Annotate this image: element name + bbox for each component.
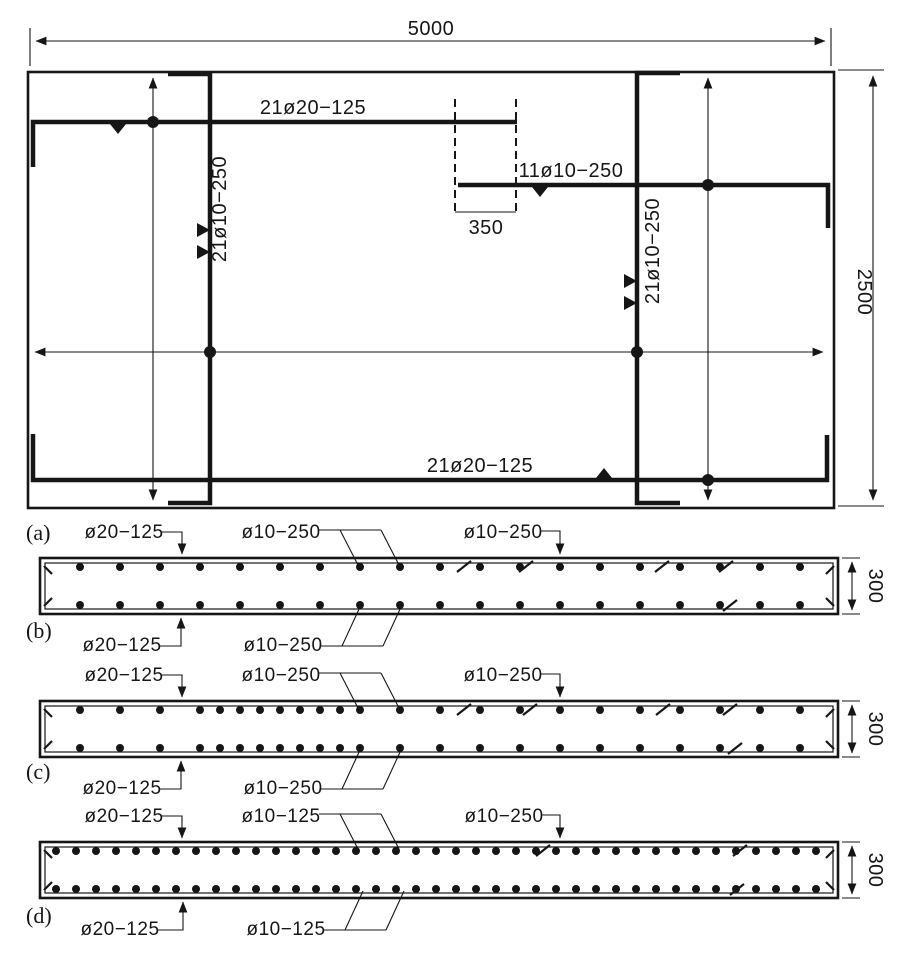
- rebar-dot: [396, 706, 404, 714]
- rebar-dot: [252, 885, 260, 893]
- rebar-dot: [796, 563, 804, 571]
- callout-label: ø10−250: [241, 522, 320, 543]
- rebar-dot: [596, 706, 604, 714]
- rebar-dot: [756, 744, 764, 752]
- rebar-dot: [236, 563, 244, 571]
- lap-dim-value: 350: [469, 217, 504, 239]
- rebar-dot: [772, 885, 780, 893]
- rebar-dot: [316, 601, 324, 609]
- rebar-dot: [712, 885, 720, 893]
- rebar-dot: [512, 847, 520, 855]
- rebar-dot: [636, 601, 644, 609]
- rebar-dots: [76, 704, 804, 754]
- rebar-dot: [676, 601, 684, 609]
- extension-line: [842, 558, 860, 614]
- rebar-dot: [756, 706, 764, 714]
- rebar-dot: [596, 601, 604, 609]
- leader-line: [160, 618, 181, 646]
- leader-line: [162, 816, 182, 838]
- rebar-dot: [812, 847, 820, 855]
- top-main-bar: 21ø20−125: [33, 97, 517, 167]
- rebar-dot: [436, 563, 444, 571]
- rebar-dot: [452, 847, 460, 855]
- extension-line: [842, 842, 860, 898]
- top-main-bar-label: 21ø20−125: [260, 97, 366, 119]
- depth-dimension: 300: [842, 842, 886, 898]
- callout-label: ø10−250: [463, 665, 542, 686]
- rebar-dot: [52, 847, 60, 855]
- rebar-dot: [772, 847, 780, 855]
- rebar-dot: [76, 563, 84, 571]
- bottom-main-callout: ø20−125: [82, 761, 181, 799]
- callout-label: ø10−250: [463, 522, 542, 543]
- rebar-dot: [396, 601, 404, 609]
- rebar-dot: [516, 744, 524, 752]
- rebar-dot: [72, 847, 80, 855]
- middle-bar-label: 11ø10−250: [519, 160, 624, 182]
- caption-d: (d): [26, 903, 52, 928]
- leader-line: [162, 532, 182, 554]
- rebar-dot: [92, 847, 100, 855]
- rebar-dot: [152, 885, 160, 893]
- rebar-dot: [112, 847, 120, 855]
- rebar-dot: [492, 885, 500, 893]
- rebar-dot: [276, 563, 284, 571]
- rebar-dots: [52, 845, 820, 895]
- rebar-dot: [352, 885, 360, 893]
- section-b: ø20−125 ø10−250 ø10−250 ø20−125 ø10−250 …: [26, 522, 886, 656]
- plan-height-value: 2500: [853, 269, 875, 316]
- rebar-dot: [476, 744, 484, 752]
- rebar-dot: [232, 847, 240, 855]
- rebar-dot: [172, 847, 180, 855]
- leader-line: [319, 530, 399, 565]
- rebar-dot: [612, 885, 620, 893]
- rebar-dot: [592, 847, 600, 855]
- leader-line: [541, 531, 560, 554]
- rebar-dot: [236, 706, 244, 714]
- rebar-dot: [196, 563, 204, 571]
- rebar-dot: [76, 601, 84, 609]
- rebar-dot: [216, 706, 224, 714]
- rebar-dot: [372, 885, 380, 893]
- rebar-dot: [332, 847, 340, 855]
- rebar-dot: [676, 563, 684, 571]
- rebar-dot: [276, 706, 284, 714]
- rebar-dot: [276, 601, 284, 609]
- slab-outline: [28, 72, 834, 508]
- callout-label: ø20−125: [84, 665, 163, 686]
- rebar-dot: [272, 847, 280, 855]
- callout-label: ø10−250: [243, 778, 322, 799]
- rebar-dot: [436, 601, 444, 609]
- callout-label: ø20−125: [84, 806, 163, 827]
- rebar-dot: [476, 563, 484, 571]
- rebar-dot: [492, 847, 500, 855]
- rebar-dot: [272, 885, 280, 893]
- rebar-dot: [476, 706, 484, 714]
- rebar-dot: [612, 847, 620, 855]
- bottom-main-bar-label: 21ø20−125: [427, 455, 533, 477]
- rebar-dot: [332, 885, 340, 893]
- rebar-dot: [636, 744, 644, 752]
- leader-line: [542, 815, 560, 838]
- rebar-dot: [276, 744, 284, 752]
- rebar-dot: [92, 885, 100, 893]
- depth-dimension: 300: [842, 701, 886, 757]
- rebar-dot: [232, 885, 240, 893]
- plan-width-value: 5000: [408, 18, 455, 40]
- rebar-dot: [236, 601, 244, 609]
- rebar-dot: [756, 563, 764, 571]
- rebar-dot: [516, 706, 524, 714]
- rebar-dot: [116, 601, 124, 609]
- rebar-dot: [692, 847, 700, 855]
- section-d: ø20−125 ø10−125 ø10−250 ø20−125 ø10−125 …: [26, 806, 886, 940]
- rebar-dot: [312, 885, 320, 893]
- plan-width-dimension: 5000: [30, 18, 831, 66]
- rebar-dot: [352, 847, 360, 855]
- rebar-dot: [116, 706, 124, 714]
- rebar-dot: [796, 706, 804, 714]
- rebar-dot: [752, 885, 760, 893]
- depth-value: 300: [864, 569, 886, 604]
- rebar-dot: [192, 847, 200, 855]
- rebar-dot: [636, 706, 644, 714]
- bar-node: [702, 179, 714, 191]
- rebar-dot: [592, 885, 600, 893]
- rebar-dot: [556, 706, 564, 714]
- rebar-dot: [156, 744, 164, 752]
- rebar-dot: [412, 847, 420, 855]
- rebar-dot: [372, 847, 380, 855]
- rebar-dot: [212, 847, 220, 855]
- right-column-bar-label: 21ø10−250: [642, 198, 664, 304]
- rebar-dot: [396, 744, 404, 752]
- bend-marker: [110, 124, 126, 134]
- left-column-bar: 21ø10−250: [168, 74, 231, 503]
- extension-line: [842, 701, 860, 757]
- rebar-dot: [552, 885, 560, 893]
- top-main-callout: ø20−125: [84, 806, 182, 838]
- rebar-dot: [676, 706, 684, 714]
- rebar-dot: [52, 885, 60, 893]
- stirrup-hooks: [44, 566, 834, 606]
- rebar-dot: [316, 563, 324, 571]
- rebar-dot: [212, 885, 220, 893]
- top-main-callout: ø20−125: [84, 522, 182, 554]
- rebar-dot: [516, 601, 524, 609]
- rebar-dot: [116, 563, 124, 571]
- bend-marker: [596, 468, 612, 478]
- rebar-dot: [716, 706, 724, 714]
- rebar-dot: [156, 706, 164, 714]
- callout-label: ø20−125: [82, 778, 161, 799]
- rebar-dot: [432, 885, 440, 893]
- top-right-callout: ø10−250: [463, 665, 560, 697]
- depth-value: 300: [864, 712, 886, 747]
- leader-line: [319, 814, 399, 849]
- rebar-dot: [256, 706, 264, 714]
- leader-line: [158, 902, 183, 930]
- rebar-dot: [312, 847, 320, 855]
- rebar-dot: [652, 847, 660, 855]
- rebar-dot: [632, 885, 640, 893]
- rebar-dot: [432, 847, 440, 855]
- rebar-dot: [132, 847, 140, 855]
- rebar-dot: [396, 563, 404, 571]
- stirrup-hooks: [44, 709, 834, 749]
- bend-marker: [532, 187, 548, 197]
- plan-view: 5000 2500 21ø20−125 21ø: [26, 18, 884, 545]
- rebar-dot: [472, 885, 480, 893]
- rebar-dot: [672, 885, 680, 893]
- rebar-dot: [672, 847, 680, 855]
- leader-line: [319, 673, 399, 708]
- rebar-dot: [636, 563, 644, 571]
- top-main-callout: ø20−125: [84, 665, 182, 697]
- rebar-dot: [196, 706, 204, 714]
- rebar-dot: [292, 847, 300, 855]
- rebar-dot: [196, 601, 204, 609]
- rebar-dot: [152, 847, 160, 855]
- rebar-dot: [436, 744, 444, 752]
- rebar-dot: [196, 744, 204, 752]
- leader-line: [160, 761, 181, 789]
- callout-label: ø10−250: [464, 806, 543, 827]
- callout-label: ø10−125: [246, 919, 325, 940]
- rebar-dot: [596, 744, 604, 752]
- rebar-dot: [172, 885, 180, 893]
- leader-line: [162, 675, 182, 697]
- stirrup-hooks: [44, 850, 834, 890]
- rebar-dot: [336, 744, 344, 752]
- rebar-dot: [532, 885, 540, 893]
- caption-b: (b): [26, 618, 52, 643]
- rebar-dot: [72, 885, 80, 893]
- section-c: ø20−125 ø10−250 ø10−250 ø20−125 ø10−250 …: [26, 665, 886, 799]
- bottom-main-callout: ø20−125: [80, 902, 183, 940]
- rebar-dot: [716, 744, 724, 752]
- callout-label: ø20−125: [82, 635, 161, 656]
- depth-dimension: 300: [842, 558, 886, 614]
- rebar-dot: [236, 744, 244, 752]
- callout-label: ø10−250: [241, 665, 320, 686]
- rebar-dot: [556, 601, 564, 609]
- rebar-dot: [116, 744, 124, 752]
- rebar-dot: [556, 563, 564, 571]
- rebar-dot: [156, 563, 164, 571]
- rebar-dot: [472, 847, 480, 855]
- bottom-main-callout: ø20−125: [82, 618, 181, 656]
- leader-line: [541, 674, 560, 697]
- rebar-dot: [392, 885, 400, 893]
- rebar-dot: [156, 601, 164, 609]
- callout-label: ø20−125: [84, 522, 163, 543]
- rebar-dot: [296, 744, 304, 752]
- rebar-dot: [792, 885, 800, 893]
- rebar-dot: [292, 885, 300, 893]
- rebar-dot: [76, 706, 84, 714]
- rebar-dot: [792, 847, 800, 855]
- rebar-dot: [252, 847, 260, 855]
- plan-height-dimension: 2500: [838, 70, 884, 506]
- rebar-dot: [676, 744, 684, 752]
- right-column-bar: 21ø10−250: [624, 73, 680, 503]
- rebar-dot: [752, 847, 760, 855]
- rebar-dot: [76, 744, 84, 752]
- rebar-dot: [556, 744, 564, 752]
- rebar-dot: [552, 847, 560, 855]
- bar-node: [702, 474, 714, 486]
- rebar-dot: [316, 744, 324, 752]
- rebar-dot: [216, 744, 224, 752]
- rebar-dot: [716, 601, 724, 609]
- rebar-dot: [452, 885, 460, 893]
- rebar-dot: [192, 885, 200, 893]
- rebar-dot: [652, 885, 660, 893]
- rebar-dot: [712, 847, 720, 855]
- rebar-drawing: 5000 2500 21ø20−125 21ø: [0, 0, 910, 962]
- rebar-dot: [692, 885, 700, 893]
- rebar-line: [33, 122, 517, 167]
- rebar-dot: [812, 885, 820, 893]
- caption-c: (c): [26, 759, 50, 784]
- top-right-callout: ø10−250: [464, 806, 560, 838]
- rebar-dot: [796, 601, 804, 609]
- rebar-dot: [596, 563, 604, 571]
- rebar-dot: [572, 847, 580, 855]
- callout-label: ø10−250: [243, 635, 322, 656]
- callout-label: ø10−125: [241, 806, 320, 827]
- rebar-dots: [76, 561, 804, 611]
- rebar-dot: [316, 706, 324, 714]
- callout-label: ø20−125: [80, 919, 159, 940]
- rebar-dot: [572, 885, 580, 893]
- rebar-dot: [436, 706, 444, 714]
- rebar-dot: [756, 601, 764, 609]
- rebar-dot: [796, 744, 804, 752]
- caption-a: (a): [26, 520, 50, 545]
- left-column-bar-label: 21ø10−250: [209, 156, 231, 262]
- rebar-line: [168, 74, 210, 503]
- rebar-dot: [632, 847, 640, 855]
- rebar-dot: [256, 744, 264, 752]
- rebar-dot: [296, 706, 304, 714]
- depth-value: 300: [864, 853, 886, 888]
- rebar-dot: [336, 706, 344, 714]
- bar-node: [147, 116, 159, 128]
- top-right-callout: ø10−250: [463, 522, 560, 554]
- rebar-dot: [412, 885, 420, 893]
- rebar-dot: [476, 601, 484, 609]
- rebar-dot: [512, 885, 520, 893]
- rebar-dot: [112, 885, 120, 893]
- rebar-dot: [132, 885, 140, 893]
